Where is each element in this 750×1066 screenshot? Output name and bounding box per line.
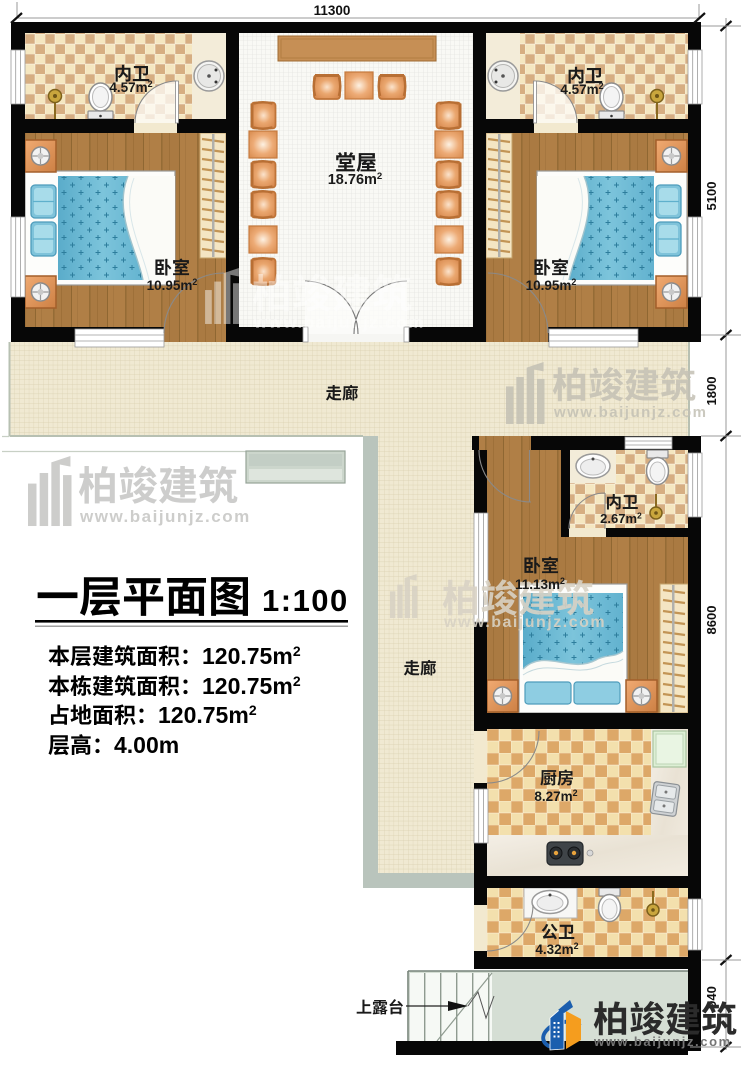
svg-text:5100: 5100 <box>704 182 719 211</box>
svg-text:www.baijunjz.com: www.baijunjz.com <box>593 1034 732 1049</box>
svg-text:4.57m2: 4.57m2 <box>109 79 152 95</box>
svg-text:4.00m: 4.00m <box>114 732 179 758</box>
svg-text:2.67m2: 2.67m2 <box>600 510 642 526</box>
svg-text:www.baijunjz.com: www.baijunjz.com <box>79 507 251 526</box>
svg-text:120.75m2: 120.75m2 <box>202 673 301 699</box>
svg-text:940: 940 <box>704 986 719 1008</box>
svg-text:www.baijunjz.com: www.baijunjz.com <box>253 313 425 332</box>
svg-text:www.baijunjz.com: www.baijunjz.com <box>553 404 707 421</box>
svg-text:18.76m2: 18.76m2 <box>328 171 383 188</box>
svg-text:11300: 11300 <box>314 3 351 18</box>
svg-text:4.57m2: 4.57m2 <box>560 81 603 97</box>
svg-text:11.13m2: 11.13m2 <box>515 576 565 592</box>
svg-text:120.75m2: 120.75m2 <box>158 702 257 728</box>
svg-text:8600: 8600 <box>704 606 719 635</box>
svg-text:www.baijunjz.com: www.baijunjz.com <box>443 614 606 631</box>
svg-text:120.75m2: 120.75m2 <box>202 643 301 669</box>
svg-text:4.32m2: 4.32m2 <box>535 941 578 957</box>
svg-text:1800: 1800 <box>704 377 719 406</box>
svg-text:8.27m2: 8.27m2 <box>534 788 577 804</box>
svg-text:10.95m2: 10.95m2 <box>526 277 577 293</box>
svg-text:10.95m2: 10.95m2 <box>147 277 198 293</box>
svg-text:1:100: 1:100 <box>262 583 349 618</box>
